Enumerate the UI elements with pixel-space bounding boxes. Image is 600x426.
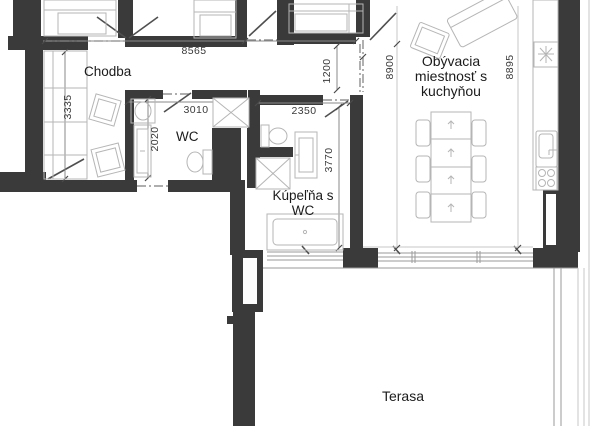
sofa-icon — [446, 0, 518, 48]
dimension-8895: 8895 — [504, 46, 516, 88]
wall — [235, 0, 247, 38]
bed-icon — [289, 4, 363, 33]
dimension-2350: 2350 — [283, 105, 325, 117]
dimension-1200: 1200 — [321, 50, 333, 92]
room-label-obyvacia: Obývacia miestnosť s kuchyňou — [404, 54, 498, 99]
bathtub-icon — [267, 214, 343, 250]
wall — [558, 0, 580, 252]
bed-icon — [44, 0, 116, 36]
wall — [230, 185, 245, 255]
fridge-icon — [534, 42, 558, 67]
floor-plan: Chodba WC Kúpeľňa s WC Obývacia miestnos… — [0, 0, 600, 426]
wall — [125, 90, 163, 99]
washing-machine-icon — [213, 98, 249, 127]
door-swing — [370, 13, 396, 40]
room-label-wc: WC — [176, 129, 199, 144]
armchair-icon — [91, 143, 125, 177]
shower-icon — [256, 158, 290, 189]
dimension-3010: 3010 — [175, 104, 217, 116]
cooktop-icon — [536, 167, 557, 190]
dimension-3335: 3335 — [62, 86, 74, 128]
dining-table-icon — [431, 112, 471, 222]
wall — [212, 128, 241, 188]
dimension-2020: 2020 — [149, 118, 161, 160]
dimension-8565: 8565 — [173, 45, 215, 57]
room-label-kupelna-line1: Kúpeľňa s — [262, 188, 344, 203]
door-swing — [129, 17, 158, 38]
wall — [0, 172, 46, 192]
dimension-8900: 8900 — [384, 46, 396, 88]
dimension-3770: 3770 — [323, 139, 335, 181]
sink-icon — [295, 132, 317, 178]
room-label-obyvacia-line3: kuchyňou — [404, 84, 498, 99]
bed-icon — [194, 0, 236, 38]
toilet-icon — [261, 125, 287, 147]
wall — [118, 0, 133, 38]
room-label-obyvacia-line1: Obývacia — [404, 54, 498, 69]
toilet-icon — [187, 150, 212, 174]
wall — [233, 305, 255, 426]
wall — [13, 0, 41, 38]
wall — [294, 33, 356, 44]
room-label-chodba: Chodba — [84, 64, 131, 79]
wall — [343, 248, 378, 268]
room-label-terasa: Terasa — [372, 389, 434, 404]
wall — [45, 180, 137, 192]
kitchen-sink-icon — [536, 131, 557, 167]
window-slot — [546, 194, 556, 245]
room-label-obyvacia-line2: miestnosť s — [404, 69, 498, 84]
wall — [248, 147, 293, 157]
armchair-icon — [89, 94, 121, 126]
door-swing — [249, 11, 276, 36]
wall — [227, 316, 234, 324]
wall — [277, 0, 294, 45]
room-label-kupelna: Kúpeľňa s WC — [262, 188, 344, 218]
wall — [350, 95, 363, 252]
wall — [25, 48, 43, 180]
window-slot — [243, 258, 257, 304]
room-label-kupelna-line2: WC — [262, 203, 344, 218]
wall — [125, 90, 134, 188]
